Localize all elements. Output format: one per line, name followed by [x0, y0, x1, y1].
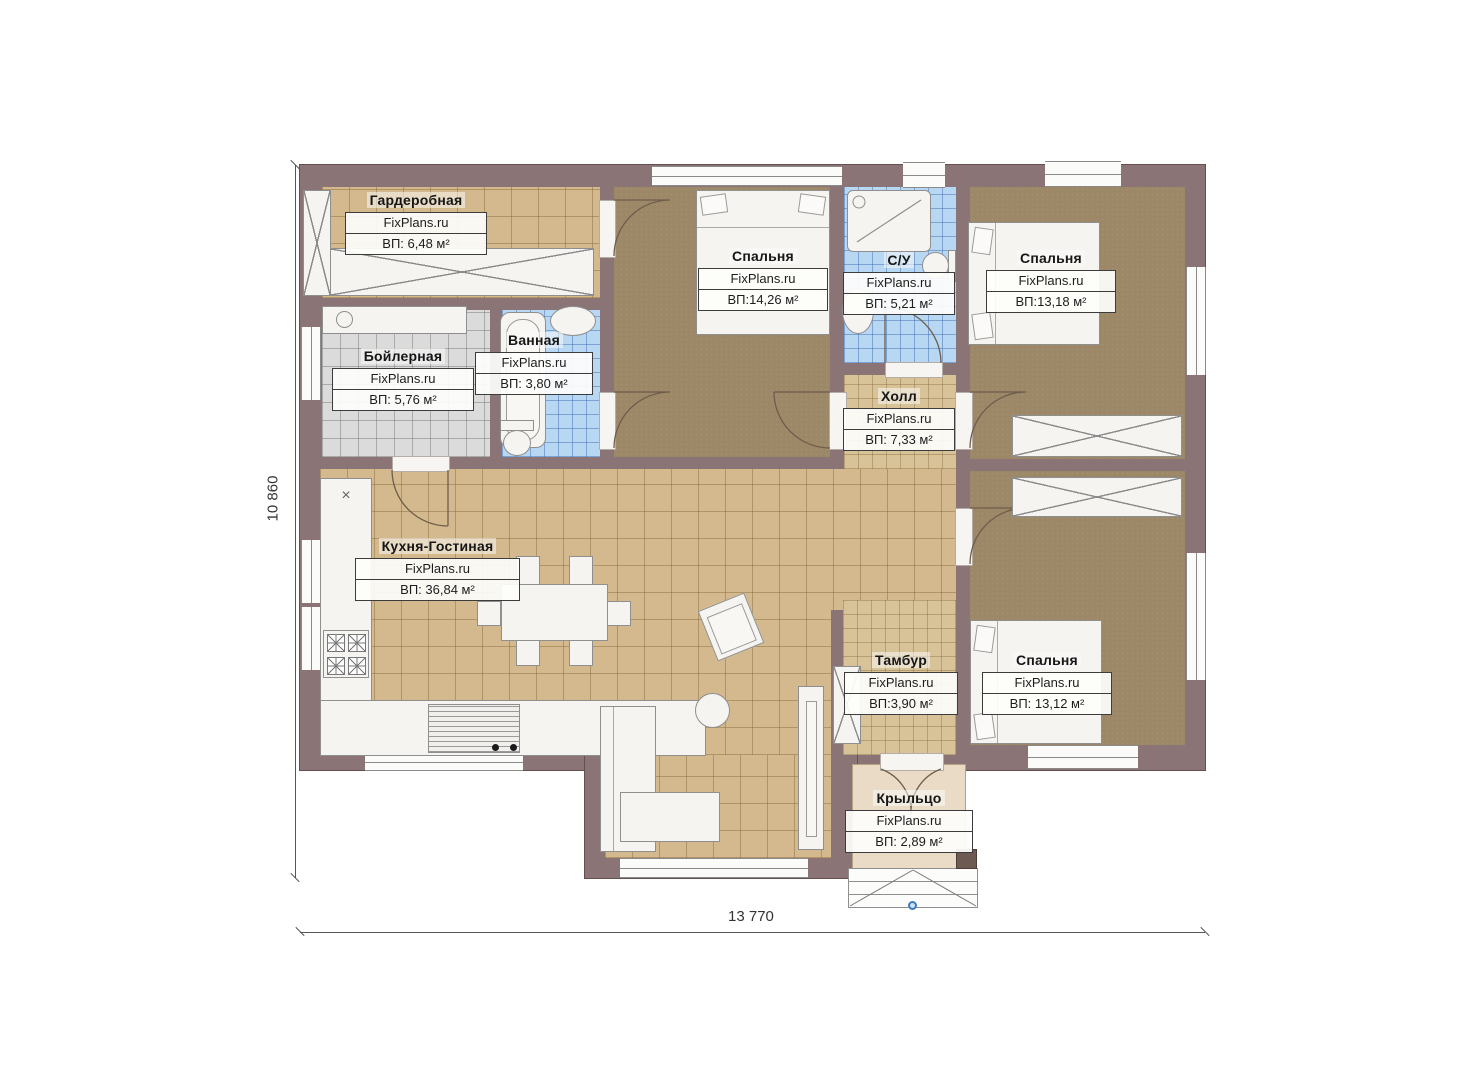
room-area: ВП:14,26 м² [698, 289, 828, 311]
room-area: ВП:3,90 м² [844, 693, 958, 715]
room-area: ВП: 36,84 м² [355, 579, 520, 601]
room-name: Ванная [505, 332, 563, 348]
oven [428, 704, 520, 753]
sofa [620, 792, 720, 842]
room-area: ВП:13,18 м² [986, 291, 1116, 313]
chair [569, 556, 593, 586]
wardrobe-closet [1012, 415, 1182, 457]
room-label-krylco: Крыльцо FixPlans.ru ВП: 2,89 м² [845, 790, 973, 853]
room-label-kuhnya: Кухня-Гостиная FixPlans.ru ВП: 36,84 м² [355, 538, 520, 601]
toilet [503, 430, 531, 456]
shower-glass [847, 190, 931, 252]
stove [323, 630, 369, 678]
brand-watermark: FixPlans.ru [843, 408, 955, 430]
tv-console [798, 686, 824, 850]
window [301, 540, 321, 603]
window [301, 607, 321, 670]
room-area: ВП: 3,80 м² [475, 373, 593, 395]
brand-watermark: FixPlans.ru [843, 272, 955, 294]
room-name: С/У [884, 252, 913, 268]
room-label-tambur: Тамбур FixPlans.ru ВП:3,90 м² [844, 652, 958, 715]
window [903, 162, 945, 188]
room-area: ВП: 7,33 м² [843, 429, 955, 451]
dimension-width: 13 770 [728, 908, 774, 925]
brand-watermark: FixPlans.ru [332, 368, 474, 390]
brand-watermark: FixPlans.ru [345, 212, 487, 234]
room-name: Бойлерная [361, 348, 445, 364]
door-arc [774, 392, 830, 448]
room-label-vannaya: Ванная FixPlans.ru ВП: 3,80 м² [475, 332, 593, 395]
door-opening [885, 362, 943, 378]
window [652, 166, 842, 186]
room-area: ВП: 13,12 м² [982, 693, 1112, 715]
room-area: ВП: 6,48 м² [345, 233, 487, 255]
window [620, 858, 808, 878]
room-name: Тамбур [872, 652, 930, 668]
brand-watermark: FixPlans.ru [845, 810, 973, 832]
window [1028, 745, 1138, 769]
window [1045, 161, 1121, 187]
room-name: Спальня [729, 248, 797, 264]
room-area: ВП: 5,76 м² [332, 389, 474, 411]
room-name: Крыльцо [873, 790, 944, 806]
dimension-height: 10 860 [264, 476, 281, 522]
door-arc [614, 200, 670, 256]
window [1186, 553, 1206, 680]
room-label-spalnya1: Спальня FixPlans.ru ВП:14,26 м² [698, 248, 828, 311]
window [301, 327, 321, 400]
door-arc [614, 392, 670, 448]
room-name: Холл [878, 388, 920, 404]
room-area: ВП: 2,89 м² [845, 831, 973, 853]
door-arc [885, 307, 941, 363]
wardrobe-closet [1012, 477, 1182, 517]
boiler [336, 311, 353, 328]
window [1186, 267, 1206, 375]
door-arc [392, 470, 448, 526]
sink-marker-icon: × [334, 484, 358, 508]
wardrobe-closet [303, 190, 331, 296]
room-label-spalnya2: Спальня FixPlans.ru ВП:13,18 м² [986, 250, 1116, 313]
brand-watermark: FixPlans.ru [698, 268, 828, 290]
room-name: Спальня [1013, 652, 1081, 668]
knob [510, 744, 517, 751]
chair [516, 640, 540, 666]
brand-watermark: FixPlans.ru [982, 672, 1112, 694]
chair [569, 640, 593, 666]
dimension-line-vertical [295, 165, 296, 878]
room-label-boylernaya: Бойлерная FixPlans.ru ВП: 5,76 м² [332, 348, 474, 411]
room-name: Гардеробная [367, 192, 466, 208]
room-label-garderobnaya: Гардеробная FixPlans.ru ВП: 6,48 м² [345, 192, 487, 255]
room-label-su: С/У FixPlans.ru ВП: 5,21 м² [843, 252, 955, 315]
entry-marker-icon [908, 901, 917, 910]
room-label-spalnya3: Спальня FixPlans.ru ВП: 13,12 м² [982, 652, 1112, 715]
floor-plan: × Гардеробная FixPlans.ru ВП: 6,48 м² Бо… [0, 0, 1474, 1080]
knob [492, 744, 499, 751]
room-name: Спальня [1017, 250, 1085, 266]
room-name: Кухня-Гостиная [379, 538, 497, 554]
room-label-holl: Холл FixPlans.ru ВП: 7,33 м² [843, 388, 955, 451]
dimension-line-horizontal [300, 932, 1205, 933]
brand-watermark: FixPlans.ru [475, 352, 593, 374]
brand-watermark: FixPlans.ru [844, 672, 958, 694]
brand-watermark: FixPlans.ru [355, 558, 520, 580]
chair [477, 601, 501, 626]
room-area: ВП: 5,21 м² [843, 293, 955, 315]
chair [607, 601, 631, 626]
brand-watermark: FixPlans.ru [986, 270, 1116, 292]
round-table [695, 693, 730, 728]
wardrobe-closet [330, 248, 594, 296]
